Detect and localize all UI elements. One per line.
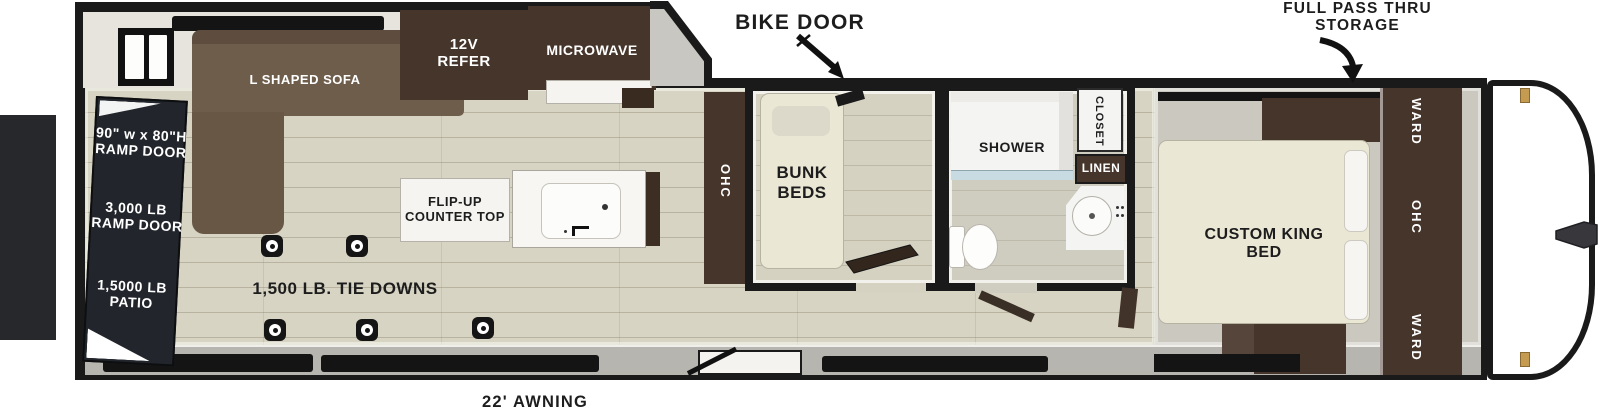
l-shaped-sofa-chaise	[192, 112, 284, 234]
floor-plan: L SHAPED SOFA 12V REFER MICROWAVE OHC FL…	[0, 0, 1600, 415]
ohc-galley-label: OHC	[718, 164, 733, 199]
kitchen-island	[512, 170, 646, 248]
shower-glass	[951, 170, 1073, 180]
refrigerator: 12V REFER	[400, 10, 528, 100]
refer-label: 12V	[400, 36, 528, 53]
window-strip	[822, 356, 1048, 372]
tie-down-anchor-icon	[346, 235, 368, 257]
bike-door-leaf-icon	[798, 36, 835, 68]
window-icon	[118, 28, 174, 86]
flip-up-label: FLIP-UP	[401, 195, 509, 210]
sofa-label: L SHAPED SOFA	[225, 73, 385, 88]
flip-up-counter: FLIP-UP COUNTER TOP	[400, 178, 510, 242]
closet-label: CLOSET	[1093, 96, 1105, 147]
king-pillow	[1344, 150, 1368, 232]
storage-arrow-icon	[1320, 40, 1353, 66]
bathroom-sink-icon	[1072, 196, 1112, 236]
tie-down-anchor-icon	[264, 319, 286, 341]
tie-down-anchor-icon	[261, 235, 283, 257]
front-cap	[1487, 80, 1595, 380]
microwave-cabinet: MICROWAVE	[528, 6, 656, 90]
ramp-door-panel: 90" w x 80"H RAMP DOOR 3,000 LB RAMP DOO…	[82, 96, 188, 366]
roof-window-strip	[172, 16, 384, 31]
closet: CLOSET	[1077, 88, 1123, 152]
front-cap-hinge-icon	[1520, 352, 1530, 367]
front-wardrobe-column: WARD OHC WARD	[1380, 88, 1462, 375]
full-pass-thru-callout: FULL PASS THRU STORAGE	[1270, 0, 1445, 34]
ohc-front-label: OHC	[1409, 200, 1424, 235]
ward-top-label: WARD	[1409, 98, 1424, 146]
linen-label: LINEN	[1077, 162, 1125, 176]
window-strip	[321, 355, 599, 372]
shower-label: SHOWER	[957, 139, 1067, 155]
patio-platform	[0, 115, 56, 340]
bike-door-arrow-icon	[812, 46, 836, 70]
king-bed-label: CUSTOM KING	[1168, 226, 1360, 244]
ohc-cabinet-galley: OHC	[704, 92, 746, 284]
microwave-label: MICROWAVE	[528, 42, 656, 58]
bunk-beds-label: BUNK	[756, 163, 848, 183]
bunk-room-doorway	[856, 283, 926, 293]
toilet-bowl-icon	[962, 224, 998, 270]
tie-down-anchor-icon	[356, 319, 378, 341]
ward-bottom-label: WARD	[1409, 314, 1424, 362]
front-cap-hinge-icon	[1520, 88, 1530, 103]
bike-door-callout: BIKE DOOR	[690, 11, 910, 35]
tie-downs-label: 1,500 LB. TIE DOWNS	[240, 279, 450, 299]
bunk-pillow	[772, 106, 830, 136]
bedroom-rug	[1154, 354, 1300, 372]
island-end-panel	[646, 172, 660, 246]
kitchen-sink-icon	[541, 183, 621, 239]
linen-cabinet: LINEN	[1075, 154, 1127, 184]
bedroom-overhead-cabinet	[1262, 98, 1380, 142]
awning-label: 22' AWNING	[420, 393, 650, 412]
tie-down-anchor-icon	[472, 317, 494, 339]
shower-stall	[951, 92, 1073, 178]
counter-end-cabinet	[622, 88, 654, 108]
